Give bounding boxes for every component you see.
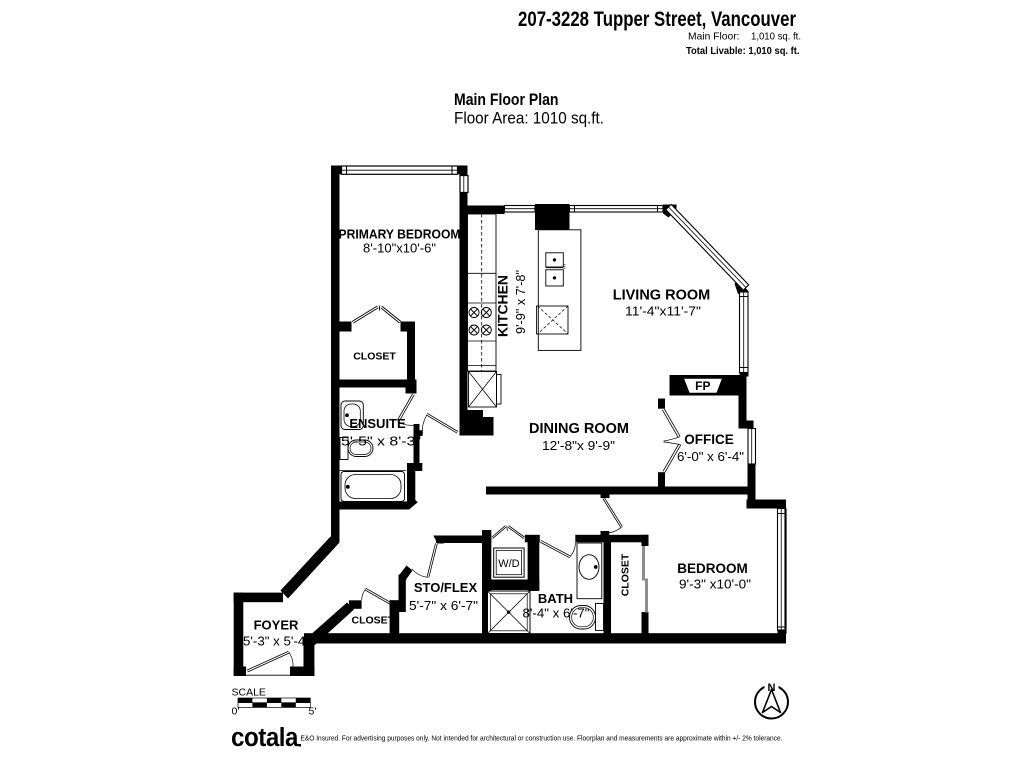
svg-text:8'-10"x10'-6": 8'-10"x10'-6" [363, 241, 436, 256]
svg-text:Floor Area: 1010 sq.ft.: Floor Area: 1010 sq.ft. [454, 110, 604, 128]
svg-text:5'-3" x 5'-4": 5'-3" x 5'-4" [243, 634, 310, 649]
svg-text:FOYER: FOYER [254, 618, 299, 633]
svg-text:FP: FP [695, 379, 710, 393]
svg-text:5'-7" x 6'-7": 5'-7" x 6'-7" [409, 598, 478, 613]
svg-text:9'-3" x10'-0": 9'-3" x10'-0" [679, 577, 751, 592]
svg-text:CLOSET: CLOSET [620, 553, 632, 596]
svg-text:9'-9" x 7'-8": 9'-9" x 7'-8" [514, 270, 528, 334]
svg-text:1,010 sq. ft.: 1,010 sq. ft. [751, 31, 801, 43]
svg-text:Main Floor:: Main Floor: [688, 31, 740, 43]
svg-text:8'-4" x 6'-7": 8'-4" x 6'-7" [523, 606, 590, 621]
svg-text:207-3228 Tupper Street, Vancou: 207-3228 Tupper Street, Vancouver [518, 8, 796, 31]
svg-text:11'-4"x11'-7": 11'-4"x11'-7" [625, 304, 701, 319]
svg-text:KITCHEN: KITCHEN [496, 275, 511, 337]
svg-text:ENSUITE: ENSUITE [349, 416, 406, 431]
svg-text:5': 5' [309, 706, 317, 718]
svg-text:BEDROOM: BEDROOM [677, 561, 748, 576]
svg-text:SCALE: SCALE [232, 687, 266, 699]
svg-text:BATH: BATH [538, 591, 573, 606]
svg-text:STO/FLEX: STO/FLEX [414, 580, 478, 595]
svg-text:LIVING ROOM: LIVING ROOM [613, 288, 710, 304]
svg-text:Main Floor Plan: Main Floor Plan [454, 91, 559, 109]
svg-text:W/D: W/D [498, 558, 519, 570]
svg-text:DINING ROOM: DINING ROOM [529, 421, 629, 437]
svg-text:0': 0' [232, 706, 240, 718]
svg-text:cotala: cotala [231, 724, 299, 752]
svg-text:12'-8"x 9'-9": 12'-8"x 9'-9" [542, 438, 615, 453]
svg-text:OFFICE: OFFICE [684, 432, 734, 447]
svg-text:6'-0" x 6'-4": 6'-0" x 6'-4" [677, 449, 744, 464]
svg-text:E&O Insured. For advertising p: E&O Insured. For advertising purposes on… [301, 734, 783, 743]
svg-text:CLOSET: CLOSET [352, 615, 395, 627]
svg-text:5'-5" x 8'-3": 5'-5" x 8'-3" [341, 434, 421, 449]
svg-text:PRIMARY BEDROOM: PRIMARY BEDROOM [339, 227, 461, 242]
svg-text:Total Livable: 1,010 sq. ft.: Total Livable: 1,010 sq. ft. [686, 45, 800, 57]
svg-text:CLOSET: CLOSET [353, 351, 396, 363]
